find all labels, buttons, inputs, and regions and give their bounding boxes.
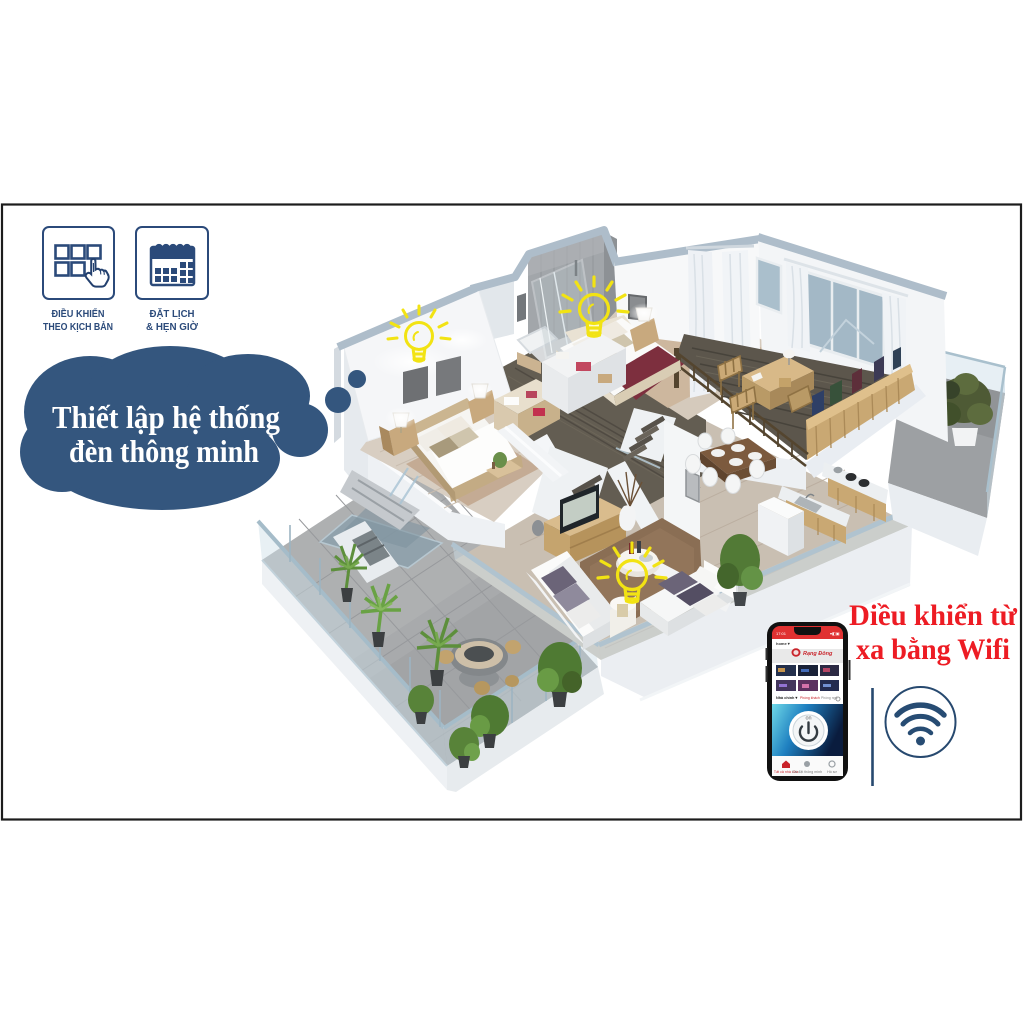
svg-text:Diều khiển từ: Diều khiển từ <box>849 599 1018 632</box>
svg-text:xa bằng Wifi: xa bằng Wifi <box>856 633 1010 666</box>
svg-text:& HẸN GIỜ: & HẸN GIỜ <box>146 320 198 333</box>
svg-text:Phòng khách: Phòng khách <box>800 696 820 700</box>
svg-text:ĐIỀU KHIỂN: ĐIỀU KHIỂN <box>52 307 105 320</box>
svg-text:Hồ sơ: Hồ sơ <box>827 770 837 774</box>
svg-text:Cài đặt thông minh: Cài đặt thông minh <box>792 770 822 774</box>
svg-text:THEO KỊCH BẢN: THEO KỊCH BẢN <box>43 320 113 333</box>
svg-text:17:01: 17:01 <box>776 631 787 636</box>
svg-text:Rạng Đông: Rạng Đông <box>803 651 833 657</box>
svg-text:ĐẶT LỊCH: ĐẶT LỊCH <box>150 307 195 320</box>
svg-text:Nhà chính ▾: Nhà chính ▾ <box>776 696 798 700</box>
svg-text:on: on <box>805 716 811 722</box>
svg-text:home ▾: home ▾ <box>776 641 791 646</box>
svg-text:▾◧▣: ▾◧▣ <box>830 631 840 636</box>
svg-text:đèn thông minh: đèn thông minh <box>69 433 259 469</box>
svg-text:Thiết lập hệ thống: Thiết lập hệ thống <box>52 399 280 435</box>
svg-text:Phòng ngủ: Phòng ngủ <box>821 696 838 700</box>
